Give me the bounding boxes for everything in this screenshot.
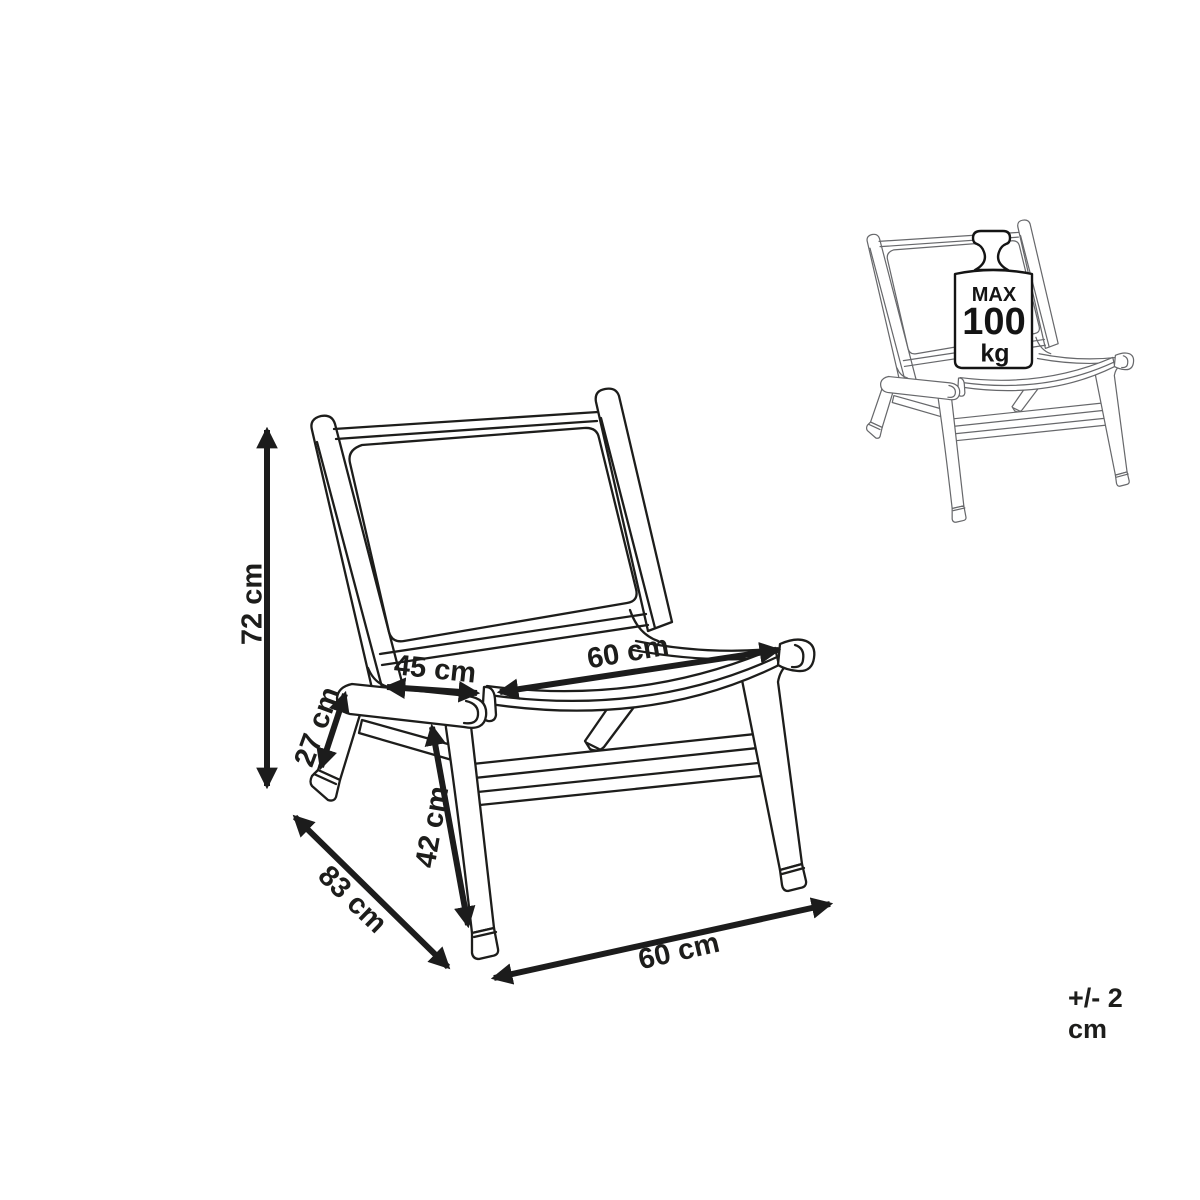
chair-dimension-drawing (0, 0, 1200, 1200)
main-chair-drawing (311, 389, 815, 959)
dimension-label-back-height: 72 cm (237, 563, 270, 645)
max-load-unit: kg (980, 342, 1009, 367)
max-load-value: 100 (962, 303, 1025, 341)
tolerance-note: +/- 2 cm (1068, 983, 1156, 1045)
dimension-diagram-page: 72 cm 45 cm 60 cm 27 cm 42 cm 83 cm 60 c… (0, 0, 1200, 1200)
